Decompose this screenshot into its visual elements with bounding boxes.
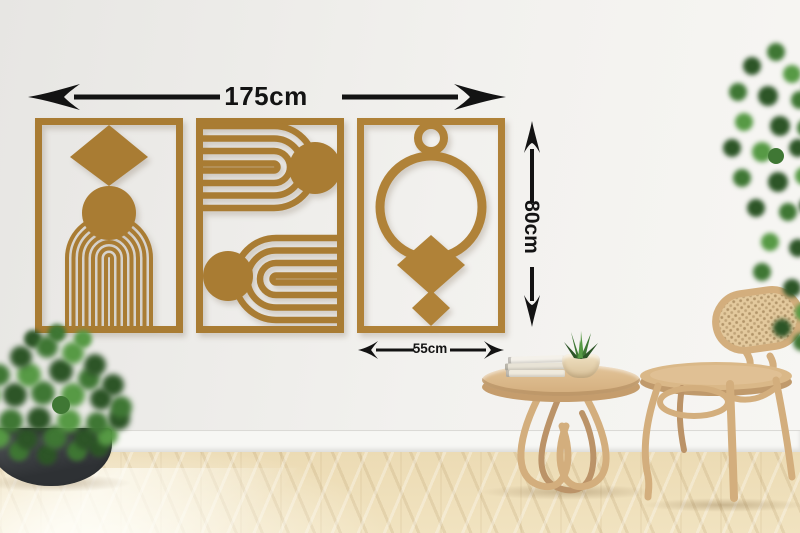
art-panel-double-arch bbox=[196, 118, 344, 333]
art-panel-diamond-circle-arch bbox=[35, 118, 183, 333]
arrowhead-left-icon bbox=[28, 84, 80, 110]
art-panel-ring-pendant bbox=[357, 118, 505, 333]
small-ring bbox=[418, 125, 444, 151]
tall-plant-foliage bbox=[768, 148, 784, 164]
sun-circle-top bbox=[289, 142, 341, 194]
circle-shape bbox=[82, 186, 136, 240]
height-dimension-label: 80cm bbox=[519, 187, 543, 267]
sun-circle-bottom bbox=[203, 251, 253, 301]
panel-width-dimension-label: 55cm bbox=[398, 341, 462, 356]
potted-bush-plant bbox=[52, 396, 70, 414]
chair-frame bbox=[630, 290, 800, 533]
diamond-shape bbox=[70, 125, 148, 186]
width-dimension-label: 175cm bbox=[216, 81, 316, 112]
arrowhead-up-icon bbox=[524, 121, 540, 153]
small-diamond bbox=[412, 290, 450, 326]
arrowhead-right-icon bbox=[454, 84, 506, 110]
succulent-plant bbox=[558, 330, 604, 360]
large-diamond bbox=[397, 235, 465, 295]
room-mockup-scene: 175cm 80cm 55cm bbox=[0, 0, 800, 533]
arrowhead-left-icon bbox=[358, 341, 378, 359]
arrowhead-right-icon bbox=[484, 341, 504, 359]
book bbox=[506, 370, 565, 377]
